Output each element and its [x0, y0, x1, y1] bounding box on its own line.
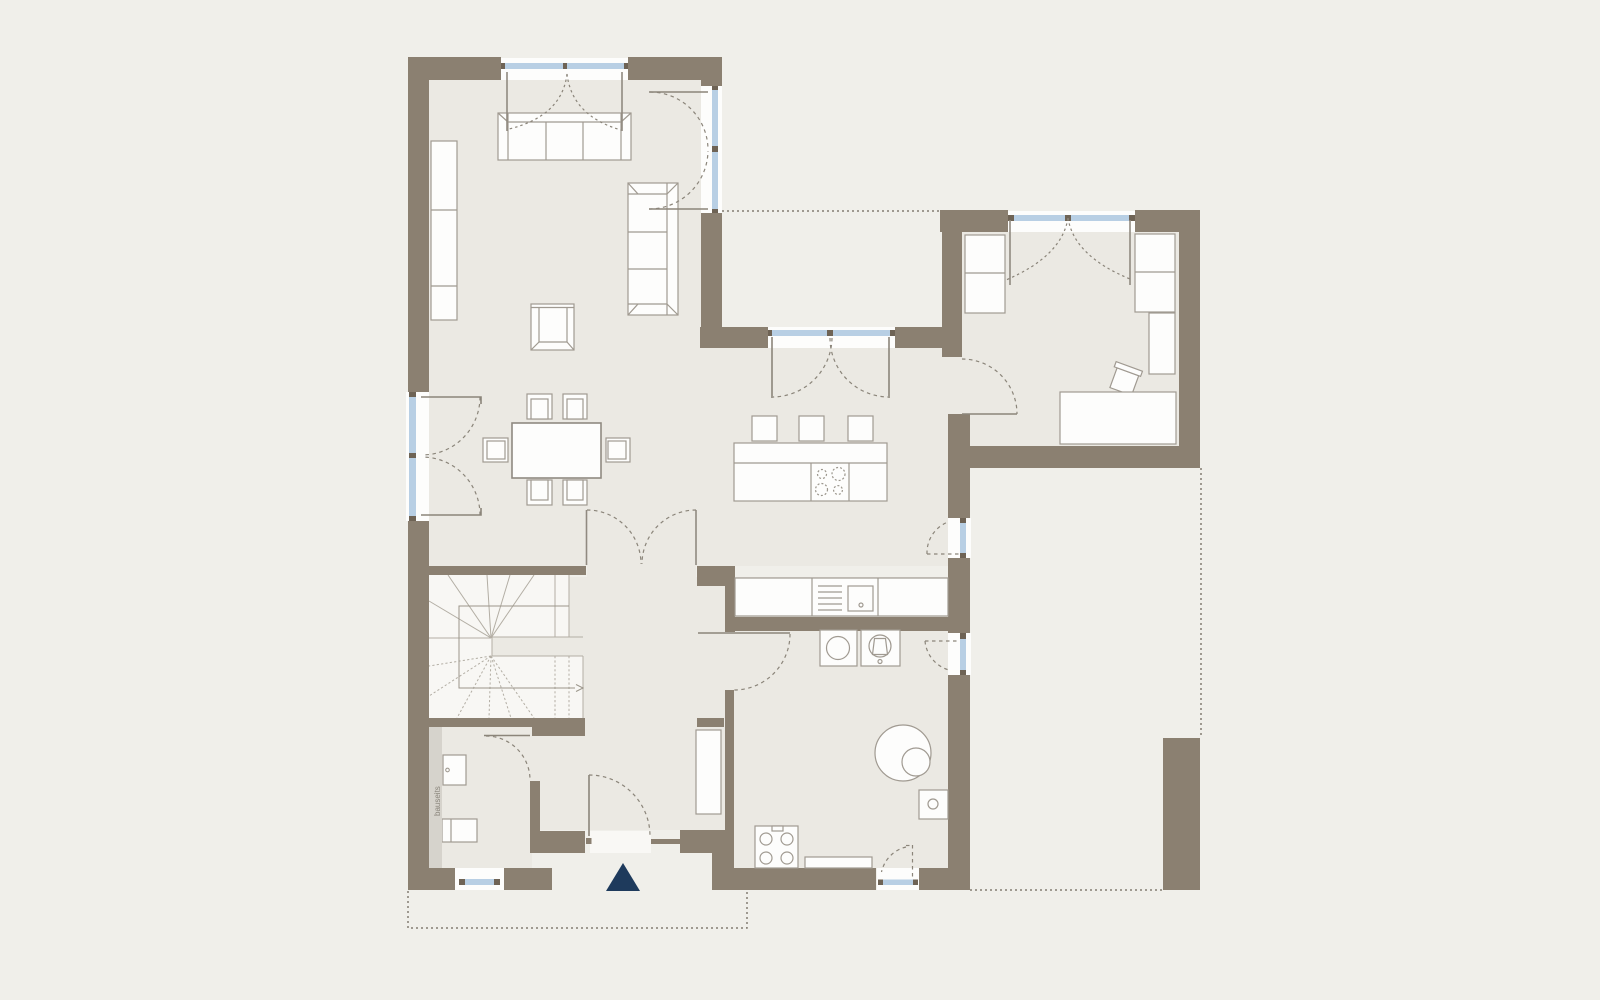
svg-text:bauseits: bauseits — [433, 786, 442, 816]
